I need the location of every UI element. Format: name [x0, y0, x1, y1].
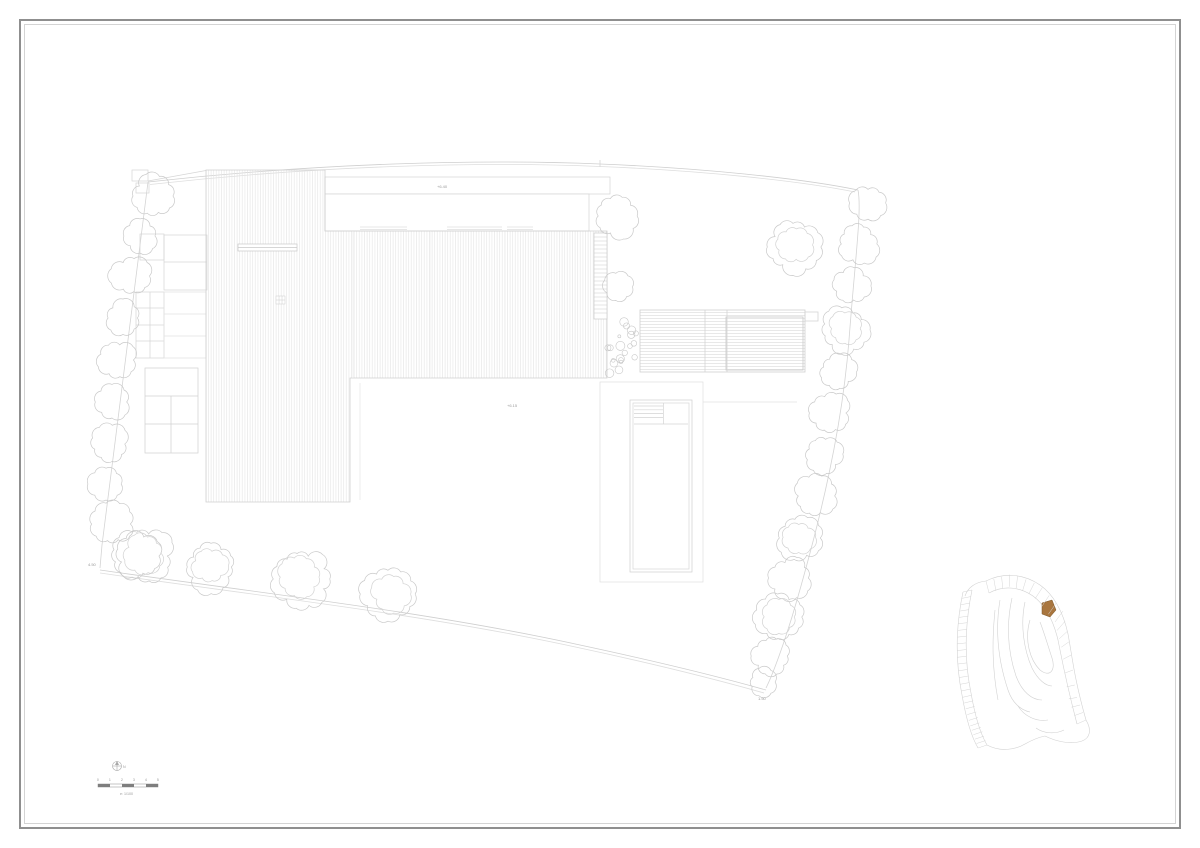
exterior-stair	[594, 233, 607, 319]
north-arrow-icon: N	[113, 761, 127, 771]
inset-top-link	[965, 581, 986, 596]
inset-road-west-inner	[966, 590, 987, 745]
site-plan-drawing: +6.40 +6.15 4.50 1.50 N 0 1 2 3 4 5 e: 1…	[0, 0, 1200, 848]
pebble	[615, 366, 623, 374]
pebble	[620, 318, 629, 327]
tree-canopy	[829, 311, 861, 344]
inset-divider	[961, 689, 970, 691]
inset-divider	[1023, 580, 1027, 592]
inset-divider	[959, 669, 968, 670]
inset-divider	[957, 650, 966, 651]
inset-divider	[957, 656, 966, 657]
tree-canopy	[832, 267, 871, 303]
tree-canopy	[95, 383, 130, 420]
inset-contour	[993, 610, 998, 700]
inset-divider	[978, 745, 987, 748]
tree-canopy	[766, 221, 823, 277]
patio-a	[164, 235, 207, 290]
scale-tick: 1	[109, 778, 111, 782]
boundary-bottom-2	[100, 573, 764, 693]
house-top-strip	[325, 177, 610, 194]
inset-divider	[994, 579, 996, 591]
inset-divider	[966, 706, 975, 708]
inset-divider	[959, 616, 968, 617]
inset-divider	[1061, 642, 1069, 648]
boundary-right	[766, 190, 859, 688]
tree-canopy	[108, 257, 152, 293]
tree-canopy	[762, 598, 795, 634]
inset-contour	[1018, 706, 1048, 720]
tree-canopy	[278, 555, 320, 599]
inset-divider	[1016, 576, 1017, 588]
inset-divider	[958, 629, 967, 630]
inset-divider	[1067, 685, 1075, 687]
inset-contour	[1009, 598, 1042, 700]
pebble	[616, 341, 625, 350]
inset-divider	[962, 597, 971, 599]
tree-canopy	[782, 523, 816, 554]
inset-divider	[1074, 713, 1083, 716]
pergola	[640, 310, 818, 372]
inset-divider	[970, 723, 979, 726]
inset-divider	[1063, 655, 1071, 659]
tree-canopy	[838, 224, 879, 265]
inset-divider	[1059, 631, 1067, 638]
stepping-path	[164, 292, 206, 358]
inset-divider	[960, 610, 969, 611]
tree-canopy	[820, 353, 858, 390]
scale-tick: 0	[97, 778, 99, 782]
scale-tick: 4	[145, 778, 147, 782]
tree-canopy	[132, 172, 175, 216]
boundary-bottom	[100, 570, 766, 690]
inset-divider	[1002, 577, 1003, 589]
inset-divider	[986, 581, 989, 593]
tree-canopy	[808, 392, 849, 432]
pebble	[622, 350, 627, 355]
inset-divider	[958, 636, 967, 637]
inset-divider	[1055, 611, 1063, 622]
inset-divider	[958, 663, 967, 664]
inset-divider	[976, 741, 985, 744]
house-canopy-strip	[325, 194, 589, 231]
main-house	[206, 170, 610, 502]
inset-divider	[1077, 720, 1086, 724]
planter-grid	[136, 292, 164, 358]
inset-contour	[1028, 620, 1054, 673]
inset-divider	[1072, 705, 1080, 707]
inset-divider	[967, 712, 976, 715]
corner-annotation-left: 4.50	[88, 562, 97, 567]
entrance-gate	[132, 170, 148, 181]
inset-divider	[975, 736, 984, 739]
pebble	[618, 335, 621, 338]
roof-skylight	[238, 244, 297, 251]
inset-divider	[973, 732, 982, 735]
pebble	[631, 341, 637, 347]
location-inset-map	[957, 575, 1089, 750]
patio-b	[145, 368, 198, 453]
inset-parcel-band-inner	[989, 588, 1077, 724]
inset-divider	[1065, 670, 1073, 673]
inset-divider	[1057, 621, 1065, 630]
inset-divider	[958, 623, 967, 624]
tree-canopy	[795, 473, 838, 515]
tree-canopy	[776, 228, 814, 262]
tree-canopy	[123, 533, 163, 575]
inset-divider	[960, 676, 969, 678]
inset-parcel-dividers	[957, 575, 1086, 748]
scale-bar: 0 1 2 3 4 5 e: 1/100	[97, 778, 159, 796]
roof-level-annotation: +6.40	[437, 184, 448, 189]
inset-divider	[957, 643, 966, 644]
tree-canopy	[191, 549, 229, 582]
tree-canopy	[822, 306, 871, 355]
tree-canopy	[91, 423, 129, 463]
pergola-end-tab	[805, 312, 818, 321]
roof-vent	[276, 296, 285, 304]
inset-contour	[1036, 728, 1064, 733]
tree-canopy	[768, 556, 811, 601]
corner-annotation-right: 1.50	[758, 696, 767, 701]
inset-divider	[963, 695, 972, 697]
rock-planting-bed	[605, 318, 639, 378]
scale-tick: 5	[157, 778, 159, 782]
scale-tick: 3	[133, 778, 135, 782]
boundary-left	[100, 182, 148, 568]
tree-canopy	[87, 467, 122, 501]
inset-bottom-hook	[1045, 720, 1089, 743]
drawing-sheet: +6.40 +6.15 4.50 1.50 N 0 1 2 3 4 5 e: 1…	[0, 0, 1200, 848]
pebble	[632, 355, 638, 361]
tree-canopy	[96, 342, 136, 378]
tree-canopy	[806, 437, 844, 475]
inset-divider	[1035, 588, 1042, 599]
tree-canopy	[752, 593, 804, 640]
terrace-level-annotation: +6.15	[507, 403, 518, 408]
pebble	[627, 326, 636, 335]
patio-a-small	[140, 234, 164, 260]
inset-divider	[964, 701, 973, 703]
pebble	[628, 344, 633, 349]
inset-divider	[961, 603, 970, 605]
scale-tick: 2	[121, 778, 123, 782]
inset-divider	[960, 683, 969, 685]
inset-bottom-link	[987, 736, 1045, 749]
inset-contour	[998, 600, 1030, 712]
pool-deck	[600, 382, 797, 582]
scale-caption: e: 1/100	[120, 792, 133, 796]
tree-canopy	[106, 299, 139, 336]
inset-divider	[1029, 583, 1035, 594]
left-garden-patios	[132, 170, 207, 453]
north-label: N	[123, 765, 126, 769]
